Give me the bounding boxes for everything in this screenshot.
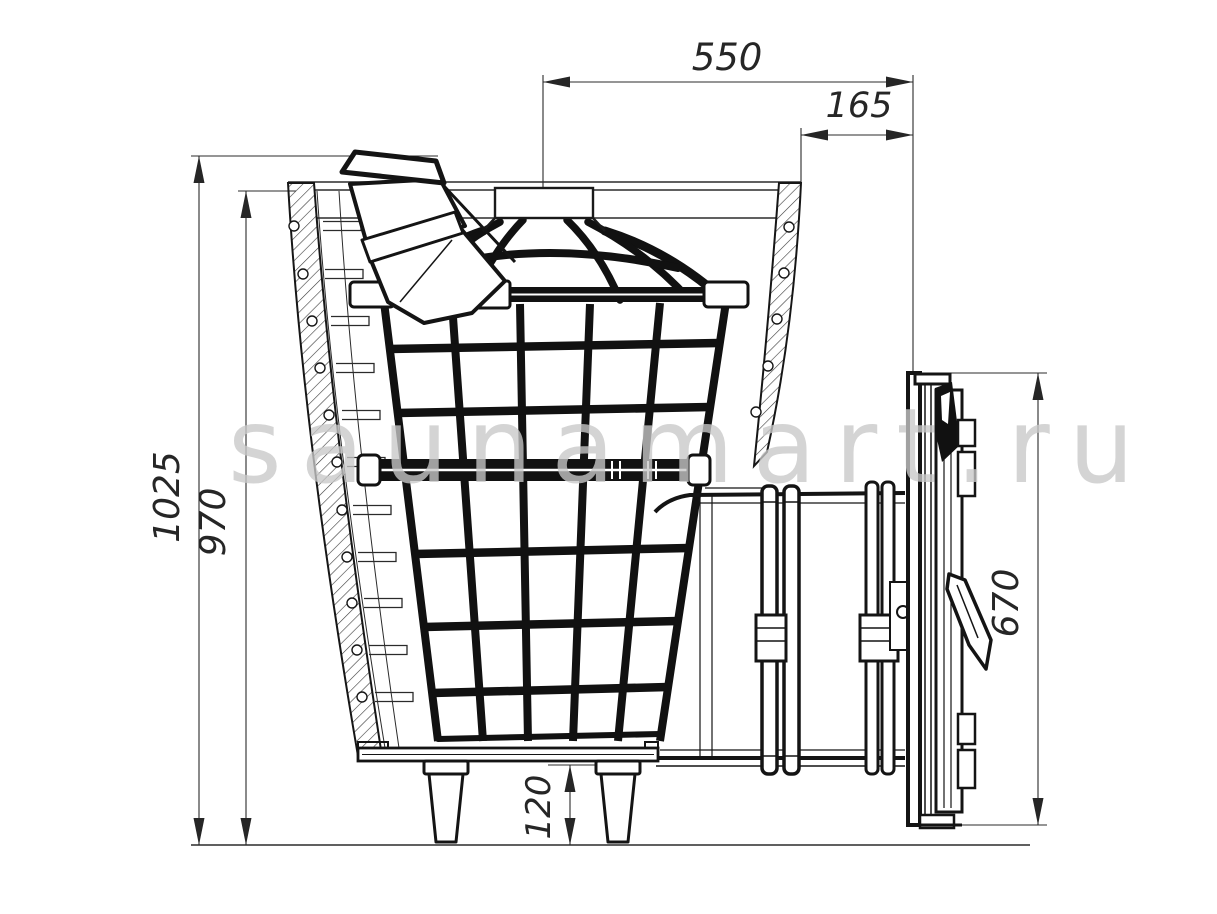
cage-ribs [384,302,726,741]
tunnel-latch-a [756,615,786,661]
funnel-rim [342,152,444,183]
leg-collar-left [424,761,468,774]
leg-collar-right [596,761,640,774]
door-top-cap [915,374,950,384]
technical-drawing-page: 550 165 1025 970 670 120 [0,0,1217,914]
leg-left [429,774,463,842]
dim-door-offset-value: 165 [826,86,893,126]
cage-bottom-rim [438,734,660,739]
base-plate [358,742,658,761]
dim-leg-height-value: 120 [519,775,559,840]
leg-right [601,774,635,842]
dim-top-width-value: 550 [692,36,763,79]
stove-drawing-svg: 550 165 1025 970 670 120 [0,0,1217,914]
watermark-text: saunamart.ru [228,387,1153,507]
dim-door-panel-height-value: 670 [986,569,1027,638]
dim-overall-height-value: 1025 [147,451,188,543]
